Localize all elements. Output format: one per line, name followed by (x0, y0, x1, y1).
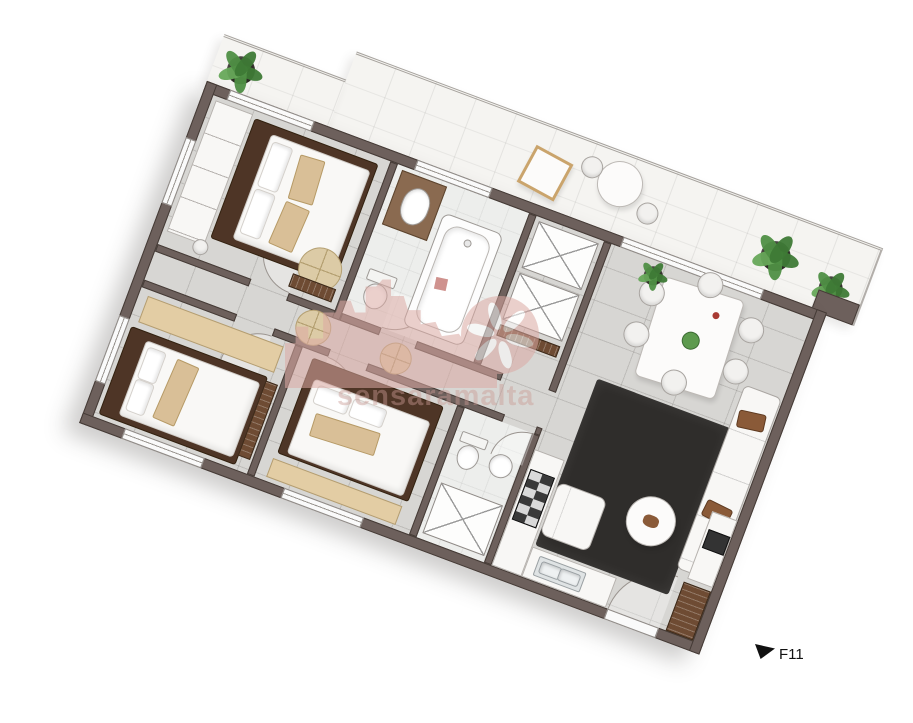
apartment-plan (79, 6, 881, 664)
table-decor (641, 513, 660, 530)
triangle-pointer-icon (755, 644, 775, 659)
unit-marker: F11 (755, 640, 825, 670)
unit-label: F11 (779, 646, 804, 663)
terrace-lounge-table (517, 145, 574, 202)
potted-plant (742, 223, 809, 290)
table-centerpiece (679, 329, 702, 352)
table-decor (712, 311, 721, 320)
floorplan-canvas: sensaramalta F11 (0, 0, 913, 723)
terrace-chair (633, 199, 661, 227)
